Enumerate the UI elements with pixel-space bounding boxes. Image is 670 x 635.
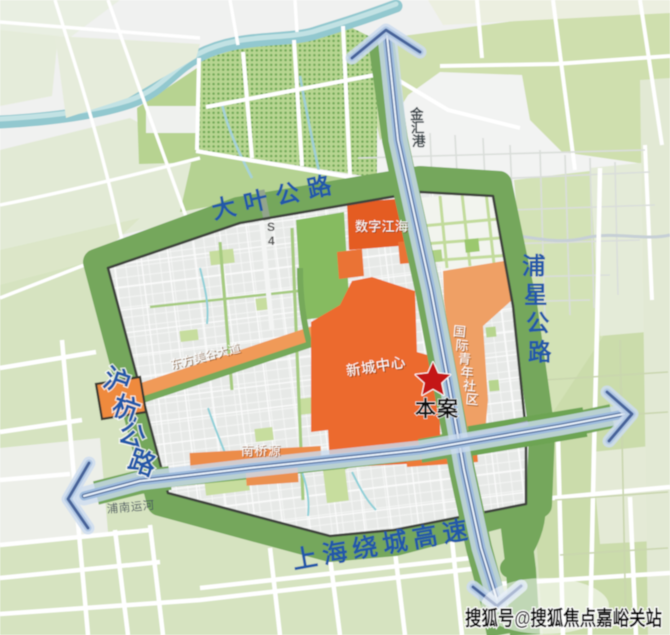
svg-text:南桥源: 南桥源 <box>241 443 282 458</box>
svg-text:浦: 浦 <box>522 252 546 279</box>
svg-text:S: S <box>267 220 275 234</box>
svg-text:星: 星 <box>524 282 548 308</box>
svg-text:港: 港 <box>412 133 426 149</box>
svg-text:数字江海: 数字江海 <box>355 219 408 234</box>
svg-text:4: 4 <box>268 234 275 248</box>
svg-text:搜狐号@搜狐焦点嘉峪关站: 搜狐号@搜狐焦点嘉峪关站 <box>465 606 662 630</box>
svg-text:路: 路 <box>528 338 552 365</box>
svg-text:本案: 本案 <box>415 397 459 421</box>
svg-text:区: 区 <box>465 391 479 407</box>
svg-text:公: 公 <box>526 310 550 336</box>
